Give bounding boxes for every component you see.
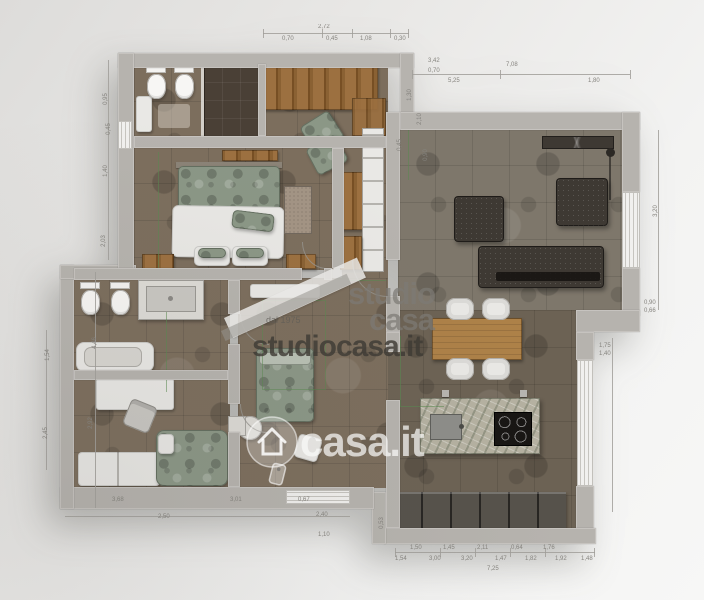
dimension-tick bbox=[408, 29, 409, 38]
dimension-label: 0,90 bbox=[644, 300, 656, 306]
dimension-line bbox=[658, 130, 659, 310]
annotation-line bbox=[158, 152, 159, 268]
dimension-label: 1,82 bbox=[525, 556, 537, 562]
bedroom-console bbox=[222, 150, 278, 161]
dimension-label: 0,30 bbox=[394, 36, 406, 42]
dimension-label: 0,70 bbox=[428, 68, 440, 74]
window-living-right bbox=[622, 192, 640, 268]
toilet-tank bbox=[80, 282, 100, 289]
dimension-label: 1,47 bbox=[495, 556, 507, 562]
dimension-label: 0,45 bbox=[106, 123, 112, 135]
toilet-bowl bbox=[147, 74, 166, 99]
dimension-label: 0,66 bbox=[644, 308, 656, 314]
dimension-label: 2,03 bbox=[101, 235, 107, 247]
dining-chair bbox=[446, 358, 474, 380]
dimension-label: 2,92 bbox=[88, 417, 94, 429]
dimension-label: 3,42 bbox=[428, 58, 440, 64]
bedroom-rug bbox=[284, 186, 312, 234]
dimension-label: 0,90 bbox=[423, 149, 429, 161]
dimension-tick bbox=[630, 70, 631, 79]
wall-bath1-divider bbox=[258, 64, 266, 136]
dining-table bbox=[432, 318, 522, 360]
wall-kitchen-left-b bbox=[386, 400, 400, 528]
dimension-tick bbox=[322, 29, 323, 38]
dimension-label: 1,30 bbox=[407, 89, 413, 101]
bidet-tank bbox=[110, 282, 130, 289]
dimension-line bbox=[263, 33, 409, 34]
dimension-label: 0,45 bbox=[326, 36, 338, 42]
dimension-label: 2,72 bbox=[318, 24, 330, 30]
dimension-label: 1,75 bbox=[599, 343, 611, 349]
dimension-label: 0,70 bbox=[282, 36, 294, 42]
daybed-pillow bbox=[158, 434, 174, 454]
dimension-line bbox=[612, 338, 613, 512]
dimension-label: 7,25 bbox=[487, 566, 499, 572]
dimension-tick bbox=[390, 29, 391, 38]
dimension-label: 0,45 bbox=[397, 139, 403, 151]
dimension-label: 4,46 bbox=[92, 337, 98, 349]
wall-right-upper bbox=[622, 112, 640, 192]
cooktop bbox=[494, 412, 532, 446]
dining-chair bbox=[446, 298, 474, 320]
floor-spot bbox=[520, 390, 527, 397]
pillow-green-top bbox=[236, 248, 264, 258]
sliding-door-bottom bbox=[286, 490, 350, 504]
bathroom-sink bbox=[136, 96, 152, 132]
dimension-label: 1,80 bbox=[588, 78, 600, 84]
dimension-line bbox=[95, 272, 96, 508]
dimension-label: 2,40 bbox=[316, 512, 328, 518]
dimension-label: 3,00 bbox=[429, 556, 441, 562]
dimension-label: 3,20 bbox=[653, 205, 659, 217]
dining-chair bbox=[482, 298, 510, 320]
wall-top-left bbox=[118, 53, 414, 68]
dimension-tick bbox=[412, 70, 413, 79]
wall-divider-c bbox=[228, 432, 240, 487]
wall-living-left-b bbox=[386, 296, 400, 332]
wall-living-top bbox=[400, 112, 640, 130]
dimension-label: 0,53 bbox=[379, 517, 385, 529]
pillow-green-top bbox=[198, 248, 226, 258]
armchair-knit-2 bbox=[556, 178, 608, 226]
dimension-label: 1,45 bbox=[443, 545, 455, 551]
wall-bedroom-bottom-a bbox=[74, 268, 302, 280]
wall-left-upper bbox=[118, 53, 134, 275]
kitchen-sink bbox=[430, 414, 462, 440]
dimension-label: 1,10 bbox=[318, 532, 330, 538]
dimension-label: 1,08 bbox=[360, 36, 372, 42]
dimension-line bbox=[108, 60, 109, 260]
dimension-label: 1,40 bbox=[599, 351, 611, 357]
sofa bbox=[478, 246, 604, 288]
sofa-seat-shadow bbox=[496, 272, 600, 281]
wall-divider-b bbox=[228, 344, 240, 404]
shower-glass bbox=[201, 64, 204, 138]
shower-dark-tile bbox=[204, 64, 260, 138]
wall-bath2-bottom bbox=[74, 370, 228, 380]
kitchen-base-cabinets bbox=[394, 492, 566, 528]
dimension-line bbox=[65, 516, 350, 517]
wall-bedroom-top bbox=[134, 136, 386, 148]
armchair-knit-1 bbox=[454, 196, 504, 242]
dimension-label: 5,25 bbox=[448, 78, 460, 84]
wall-kitchen-right-b bbox=[576, 486, 594, 532]
bidet-bowl bbox=[111, 290, 130, 315]
annotation-line bbox=[408, 128, 409, 180]
floor-lamp-stem bbox=[609, 156, 611, 200]
dimension-label: 0,64 bbox=[511, 545, 523, 551]
wall-kitchen-right-a bbox=[576, 332, 594, 360]
dimension-tick bbox=[352, 29, 353, 38]
window-left bbox=[118, 121, 132, 149]
dimension-label: 1,92 bbox=[555, 556, 567, 562]
dimension-label: 2,10 bbox=[417, 113, 423, 125]
bath-mat bbox=[158, 104, 190, 128]
wall-step-right bbox=[576, 310, 640, 332]
apartment-plan: 2,720,700,451,080,307,085,251,803,420,70… bbox=[0, 0, 704, 600]
dimension-line bbox=[412, 74, 630, 75]
dimension-label: 3,20 bbox=[461, 556, 473, 562]
dimension-label: 2,50 bbox=[158, 514, 170, 520]
dimension-label: 1,76 bbox=[543, 545, 555, 551]
wall-right-lower bbox=[622, 268, 640, 316]
toilet-bowl bbox=[81, 290, 100, 315]
annotation-line bbox=[400, 406, 444, 407]
dimension-label: 1,54 bbox=[45, 349, 51, 361]
dimension-label: 1,54 bbox=[395, 556, 407, 562]
annotation-line bbox=[400, 336, 401, 406]
dimension-label: 0,95 bbox=[103, 93, 109, 105]
dimension-label: 3,68 bbox=[112, 497, 124, 503]
window-kitchen-right bbox=[577, 360, 593, 486]
dimension-label: 7,08 bbox=[506, 62, 518, 68]
dining-chair bbox=[482, 358, 510, 380]
bench-sofa-white bbox=[78, 452, 160, 486]
dimension-tick bbox=[594, 548, 595, 557]
floor-spot bbox=[442, 390, 449, 397]
annotation-line bbox=[166, 312, 167, 392]
dimension-label: 1,40 bbox=[103, 165, 109, 177]
floorplan-render: 2,720,700,451,080,307,085,251,803,420,70… bbox=[0, 0, 704, 600]
wall-living-left-a bbox=[386, 112, 400, 260]
wall-kitchen-bottom bbox=[384, 528, 596, 544]
kitchen-faucet bbox=[459, 424, 464, 429]
dimension-label: 0,67 bbox=[298, 497, 310, 503]
dimension-label: 1,48 bbox=[581, 556, 593, 562]
dimension-label: 2,11 bbox=[477, 545, 488, 551]
dimension-tick bbox=[263, 29, 264, 38]
corridor-bookshelf bbox=[362, 128, 384, 272]
shower-drain bbox=[168, 296, 173, 301]
bidet-bowl bbox=[175, 74, 194, 99]
bathtub-basin bbox=[84, 347, 142, 367]
wall-bedroom-right bbox=[332, 148, 344, 268]
wall-divider-a bbox=[228, 280, 240, 314]
wall-kitchen-left-a bbox=[386, 332, 400, 352]
wall-left-lower bbox=[60, 265, 74, 509]
dimension-label: 2,45 bbox=[43, 427, 49, 439]
dimension-label: 3,01 bbox=[230, 497, 242, 503]
dimension-tick bbox=[500, 70, 501, 79]
dimension-tick bbox=[475, 548, 476, 557]
dimension-line bbox=[395, 552, 595, 553]
console-table bbox=[542, 136, 614, 149]
dimension-label: 1,50 bbox=[410, 545, 422, 551]
